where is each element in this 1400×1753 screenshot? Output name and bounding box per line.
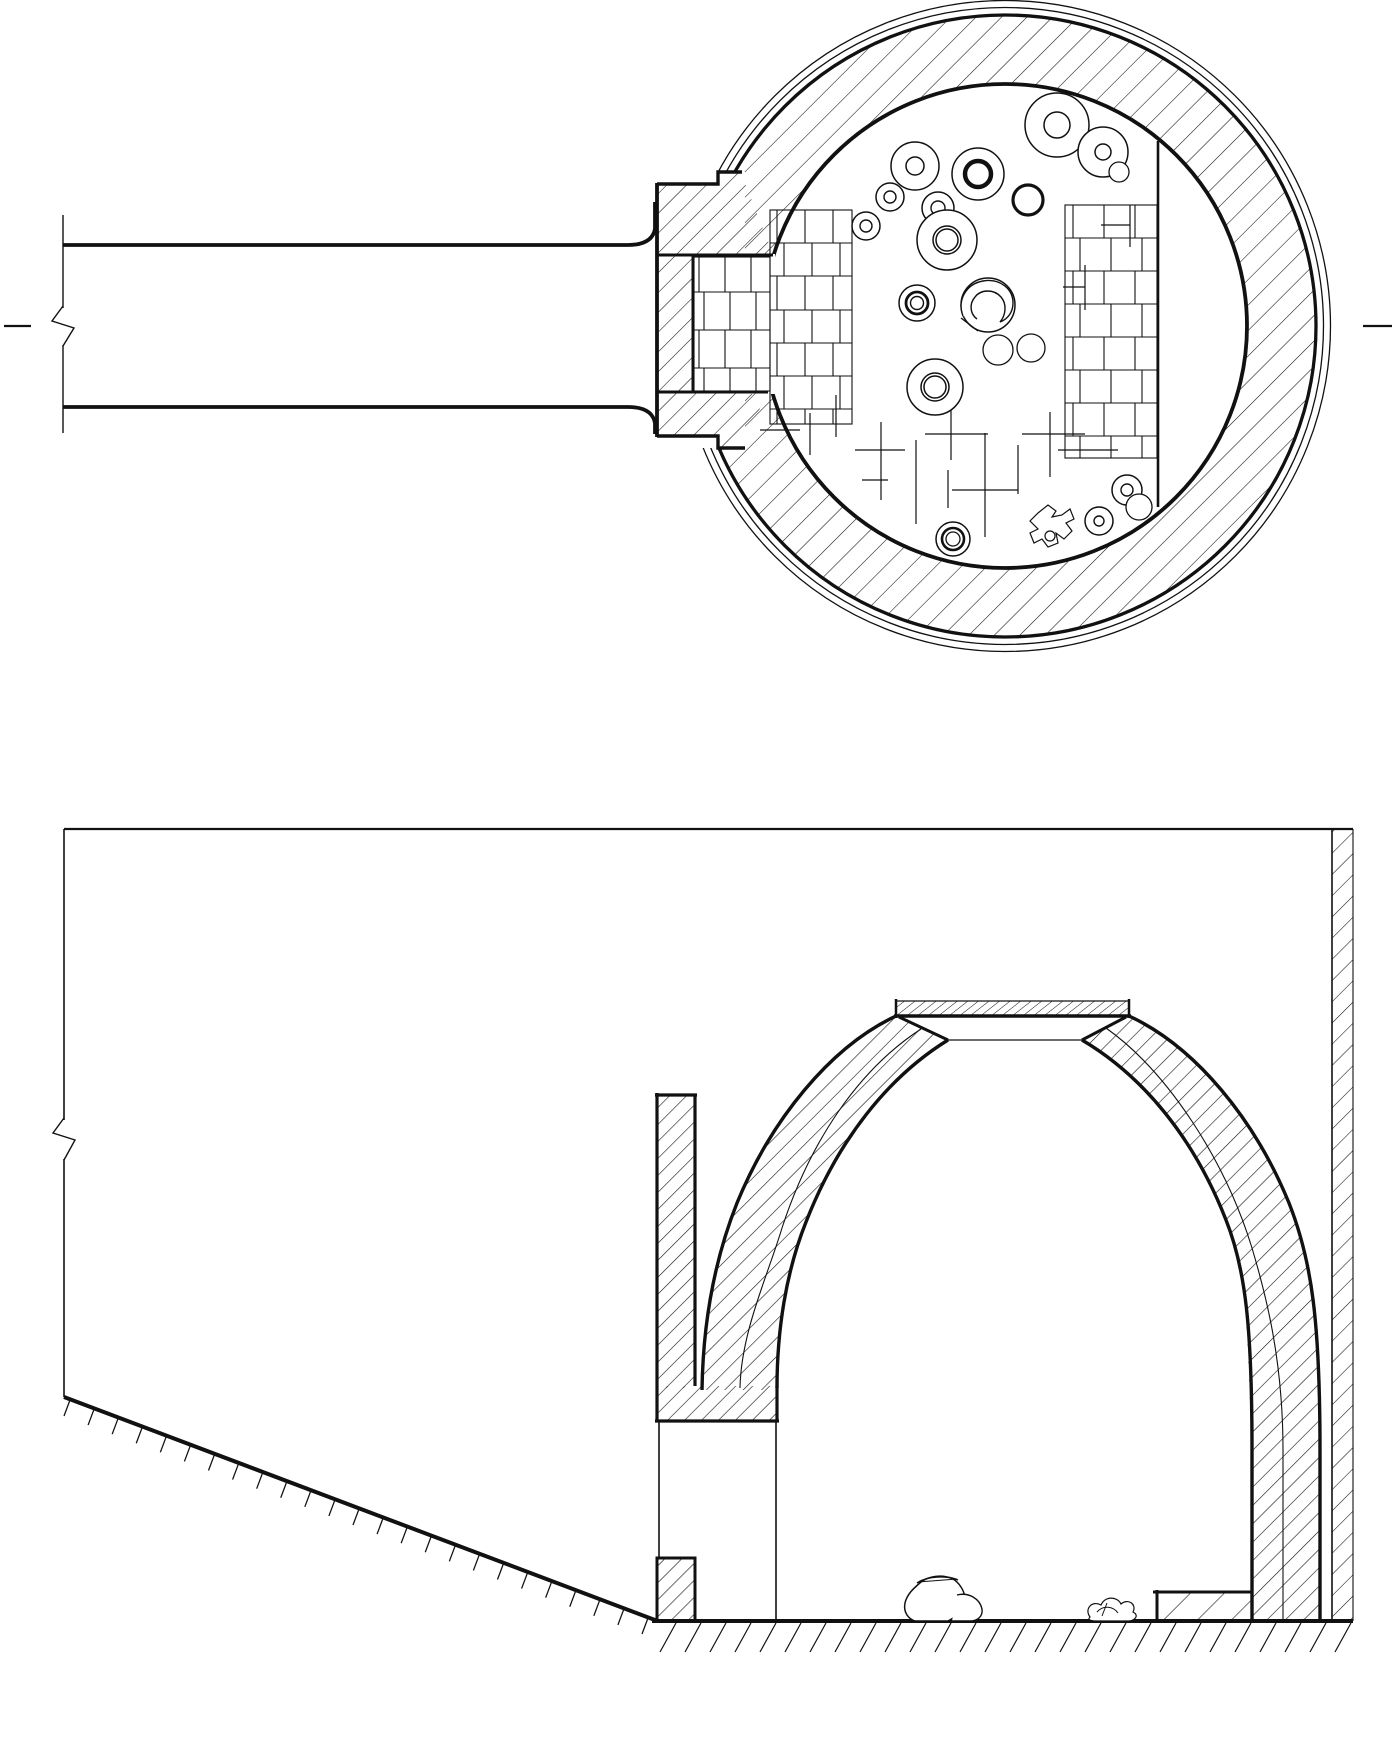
drawing-sheet (0, 0, 1400, 1753)
blocking-wall-hatch (658, 255, 693, 392)
bedrock-wall-hatch (1332, 829, 1353, 1621)
pot-notched (1078, 127, 1129, 182)
pot (899, 285, 935, 321)
masonry-west-patch (770, 210, 852, 424)
pot (891, 142, 939, 190)
slope-hatch (64, 1400, 648, 1634)
bench-block-hatch (1157, 1592, 1252, 1621)
plan-view-figure (4, 1, 1392, 652)
pot (1085, 507, 1113, 535)
lintel-block-hatch (657, 1386, 777, 1421)
masonry-east-patch (1065, 205, 1157, 458)
dromos-wall-pillar-hatch (657, 1095, 695, 1388)
pot (1017, 334, 1045, 362)
capstone-hatch (896, 1001, 1129, 1016)
pot (983, 335, 1013, 365)
crushed-pot-core (1045, 531, 1055, 541)
pot-large (907, 359, 963, 415)
dromos-north-wall (63, 202, 655, 245)
break-mark (53, 1118, 75, 1160)
section-view-figure (53, 829, 1353, 1652)
pot (936, 522, 970, 556)
ground-hatch (660, 1623, 1351, 1652)
pot-thick-ring (952, 148, 1004, 200)
pot-thick (1013, 185, 1043, 215)
amphora-sherd (952, 1594, 982, 1621)
technical-drawing-svg (0, 0, 1400, 1753)
pot (876, 183, 904, 211)
dome-wall-east-hatch (1082, 1016, 1320, 1621)
dromos-south-wall (63, 407, 655, 434)
pot (1126, 494, 1152, 520)
dome-wall-west-hatch (702, 1016, 948, 1390)
slope-ground-line (64, 1397, 655, 1620)
pot (852, 212, 880, 240)
pot-large (917, 210, 977, 270)
plant-sherd-scatter (1088, 1598, 1136, 1621)
threshold-block-hatch (657, 1558, 695, 1621)
break-mark (52, 306, 74, 346)
